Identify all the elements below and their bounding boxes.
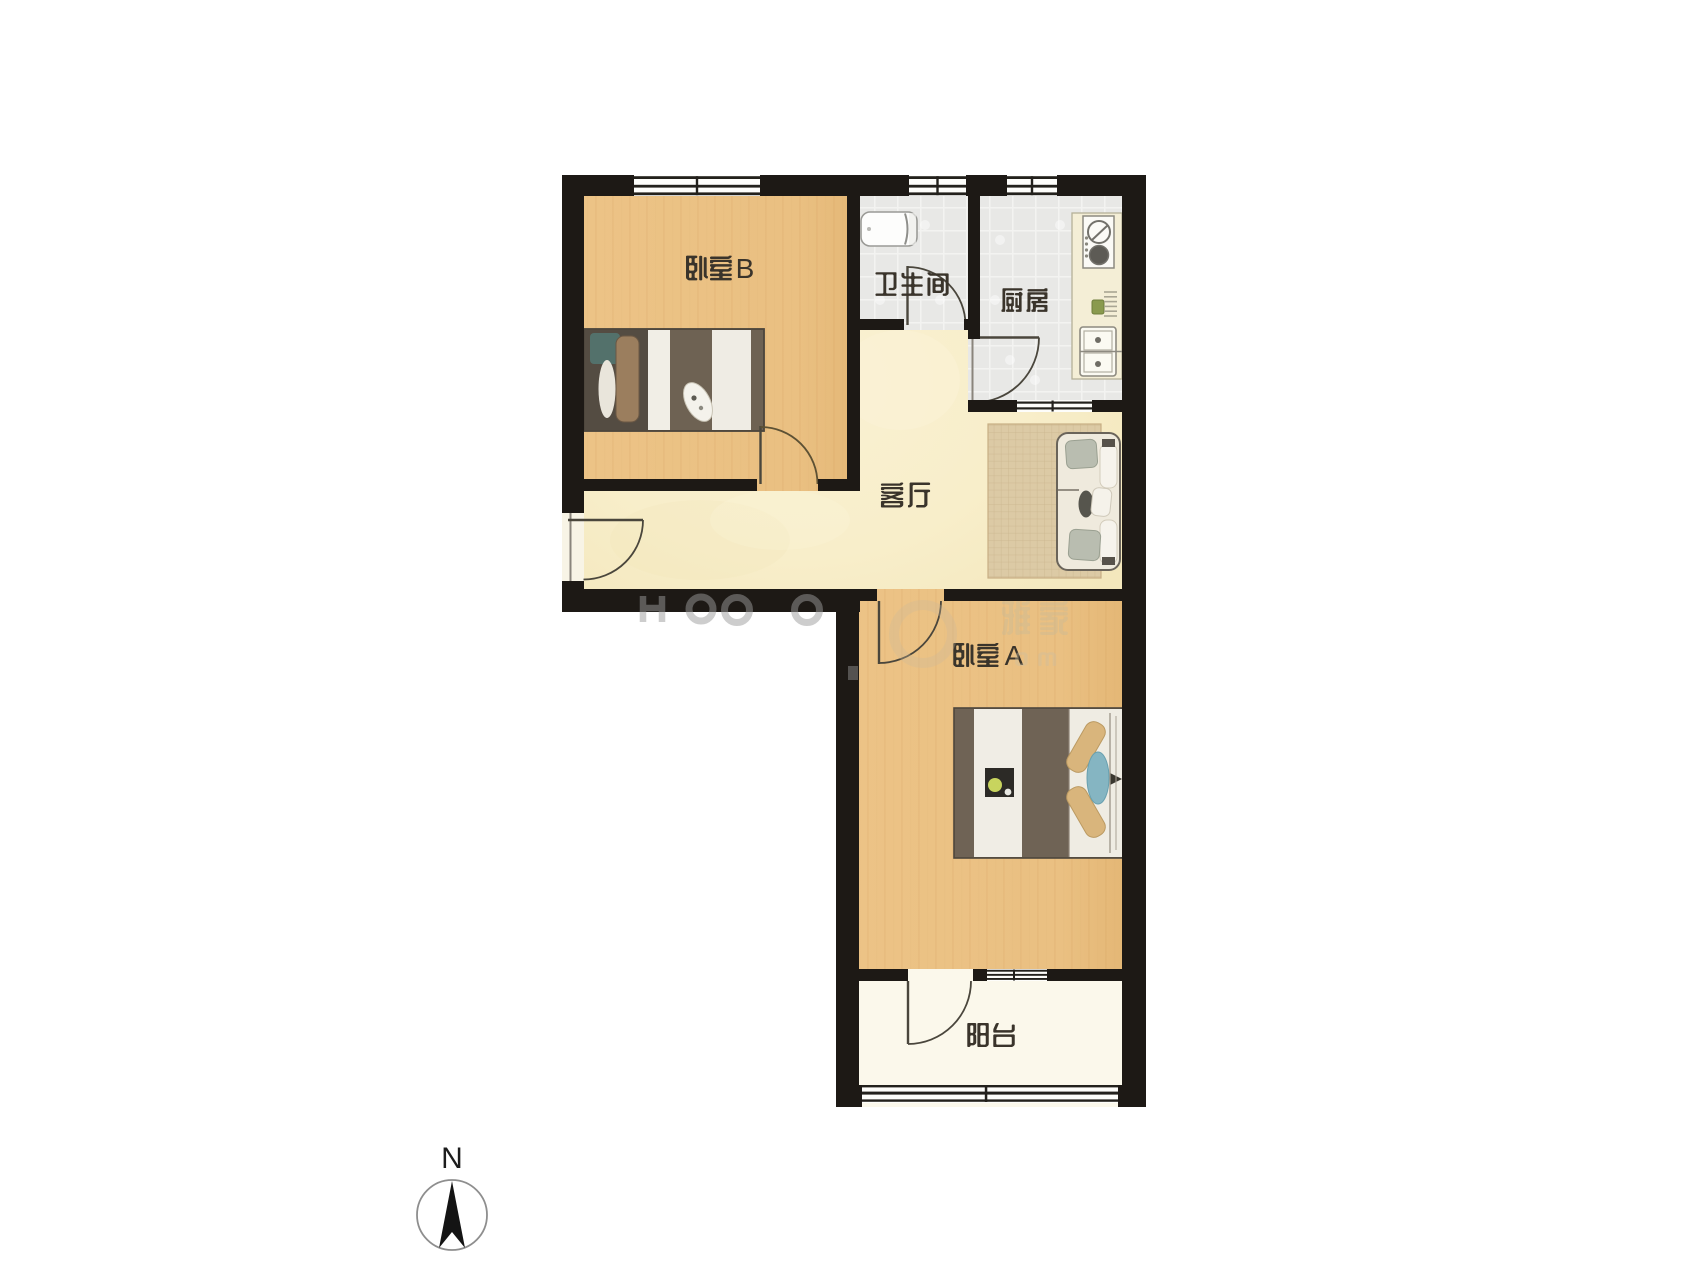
svg-text:A: A — [1005, 640, 1024, 671]
svg-text:B: B — [736, 253, 755, 284]
svg-text:N: N — [441, 1142, 463, 1175]
